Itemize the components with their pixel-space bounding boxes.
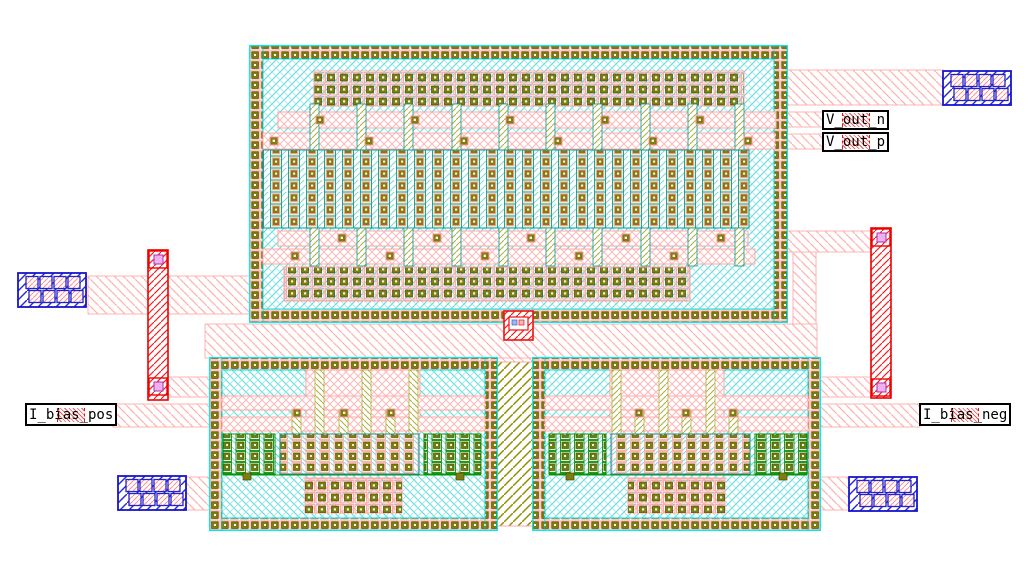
red-strap-left [148, 250, 168, 400]
port-label-text: V_out_n [826, 112, 885, 128]
bus-i-bias-neg [820, 404, 920, 427]
port-label-text: V_out_p [826, 134, 885, 150]
bus-right-strap-bottom [820, 377, 871, 397]
pad-top-right [943, 71, 1011, 105]
metal-rail-4 [263, 249, 755, 264]
metal-rail-a [545, 396, 808, 410]
bus-v-out-n [787, 112, 824, 127]
via-magenta [877, 383, 886, 392]
metal-rail-b [545, 417, 808, 431]
bias-block-left [210, 358, 497, 530]
pad-left [18, 273, 86, 307]
via-array-top [314, 71, 744, 106]
bus-left-pad-to-top-block [88, 276, 250, 314]
port-label-i-bias-pos[interactable]: I_bias_pos [25, 403, 117, 426]
transistor-finger-array [263, 150, 749, 228]
port-label-v-out-n[interactable]: V_out_n [822, 110, 889, 130]
via-array-bottom [284, 267, 690, 301]
red-strap-right [871, 228, 891, 398]
center-resistor-strip [497, 358, 533, 526]
device-group-left [549, 434, 606, 474]
metal-rail-3 [278, 231, 748, 246]
bus-vdd-to-top-right-pad [787, 70, 943, 105]
via-magenta [154, 255, 163, 264]
layout-drawing [0, 0, 1035, 583]
metal-rail-2 [263, 133, 775, 149]
device-group-right [755, 434, 807, 474]
via-array [628, 478, 725, 513]
port-label-i-bias-neg[interactable]: I_bias_neg [919, 403, 1011, 426]
port-label-text: I_bias_pos [29, 407, 113, 423]
pad-bottom-right [849, 477, 917, 511]
via-magenta [877, 233, 886, 242]
bus-right-strap-top [787, 231, 871, 252]
pad-bottom-left [118, 476, 186, 510]
top-amplifier-block [250, 46, 787, 322]
via-magenta [154, 382, 163, 391]
bus-bottom-right-pad [817, 477, 849, 510]
bus-left-strap-bottom [168, 377, 213, 397]
port-label-v-out-p[interactable]: V_out_p [822, 132, 889, 152]
bus-right-column [793, 252, 816, 326]
bias-block-right [533, 358, 820, 530]
bus-v-out-p [787, 134, 824, 149]
center-via-stack [504, 311, 533, 340]
layout-canvas[interactable]: V_out_n V_out_p I_bias_pos I_bias_neg [0, 0, 1035, 583]
bus-i-bias-pos [113, 404, 213, 427]
port-label-text: I_bias_neg [923, 407, 1007, 423]
device-group-center [611, 434, 750, 474]
